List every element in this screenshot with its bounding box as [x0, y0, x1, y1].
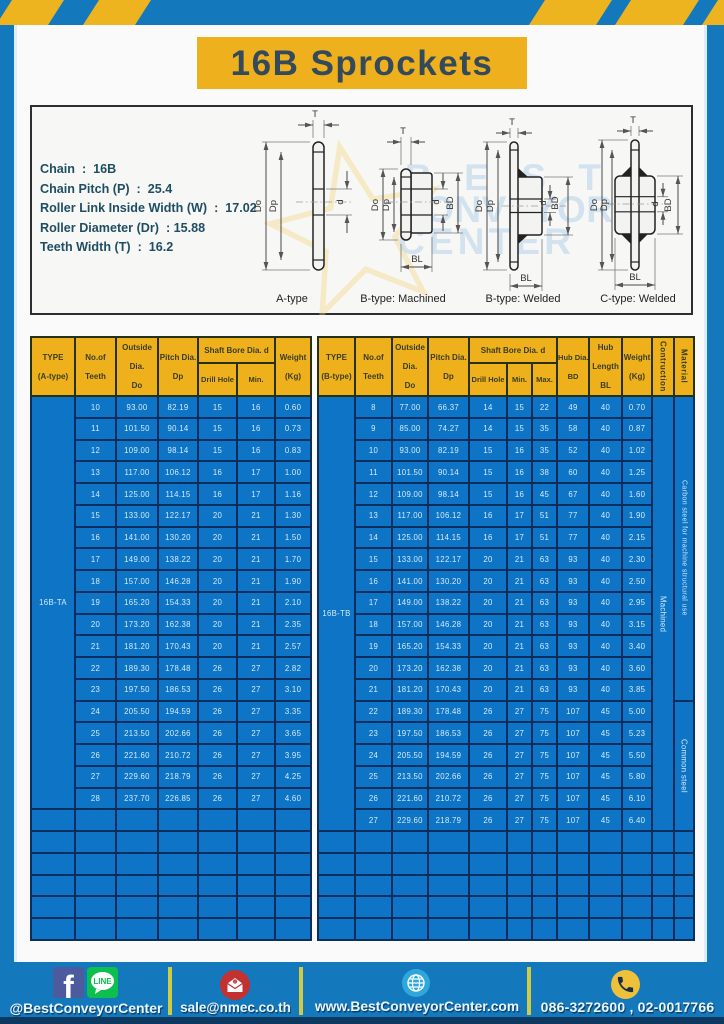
svg-text:d: d [335, 199, 346, 204]
svg-text:BD: BD [663, 198, 674, 211]
svg-text:BD: BD [445, 196, 456, 209]
svg-text:T: T [400, 126, 406, 137]
svg-text:B-type: Welded: B-type: Welded [485, 293, 560, 305]
svg-text:T: T [509, 117, 515, 128]
svg-text:B-type: Machined: B-type: Machined [360, 293, 446, 305]
svg-text:LINE: LINE [93, 977, 112, 986]
svg-text:d: d [538, 200, 549, 205]
svg-text:T: T [630, 115, 636, 126]
svg-text:BL: BL [629, 272, 641, 283]
svg-text:Dp: Dp [381, 199, 392, 211]
svg-text:BL: BL [520, 273, 532, 284]
svg-text:Dp: Dp [485, 200, 496, 212]
svg-text:C-type: Welded: C-type: Welded [600, 293, 676, 305]
svg-text:Dp: Dp [599, 199, 610, 211]
svg-text:BD: BD [550, 196, 561, 209]
svg-text:T: T [312, 109, 318, 120]
svg-text:d: d [650, 201, 661, 206]
svg-text:BL: BL [411, 254, 423, 265]
svg-text:Do: Do [253, 200, 264, 212]
svg-text:Do: Do [370, 199, 381, 211]
svg-text:A-type: A-type [276, 293, 308, 305]
svg-text:d: d [431, 199, 442, 204]
svg-text:Dp: Dp [268, 200, 279, 212]
svg-text:Do: Do [474, 200, 485, 212]
